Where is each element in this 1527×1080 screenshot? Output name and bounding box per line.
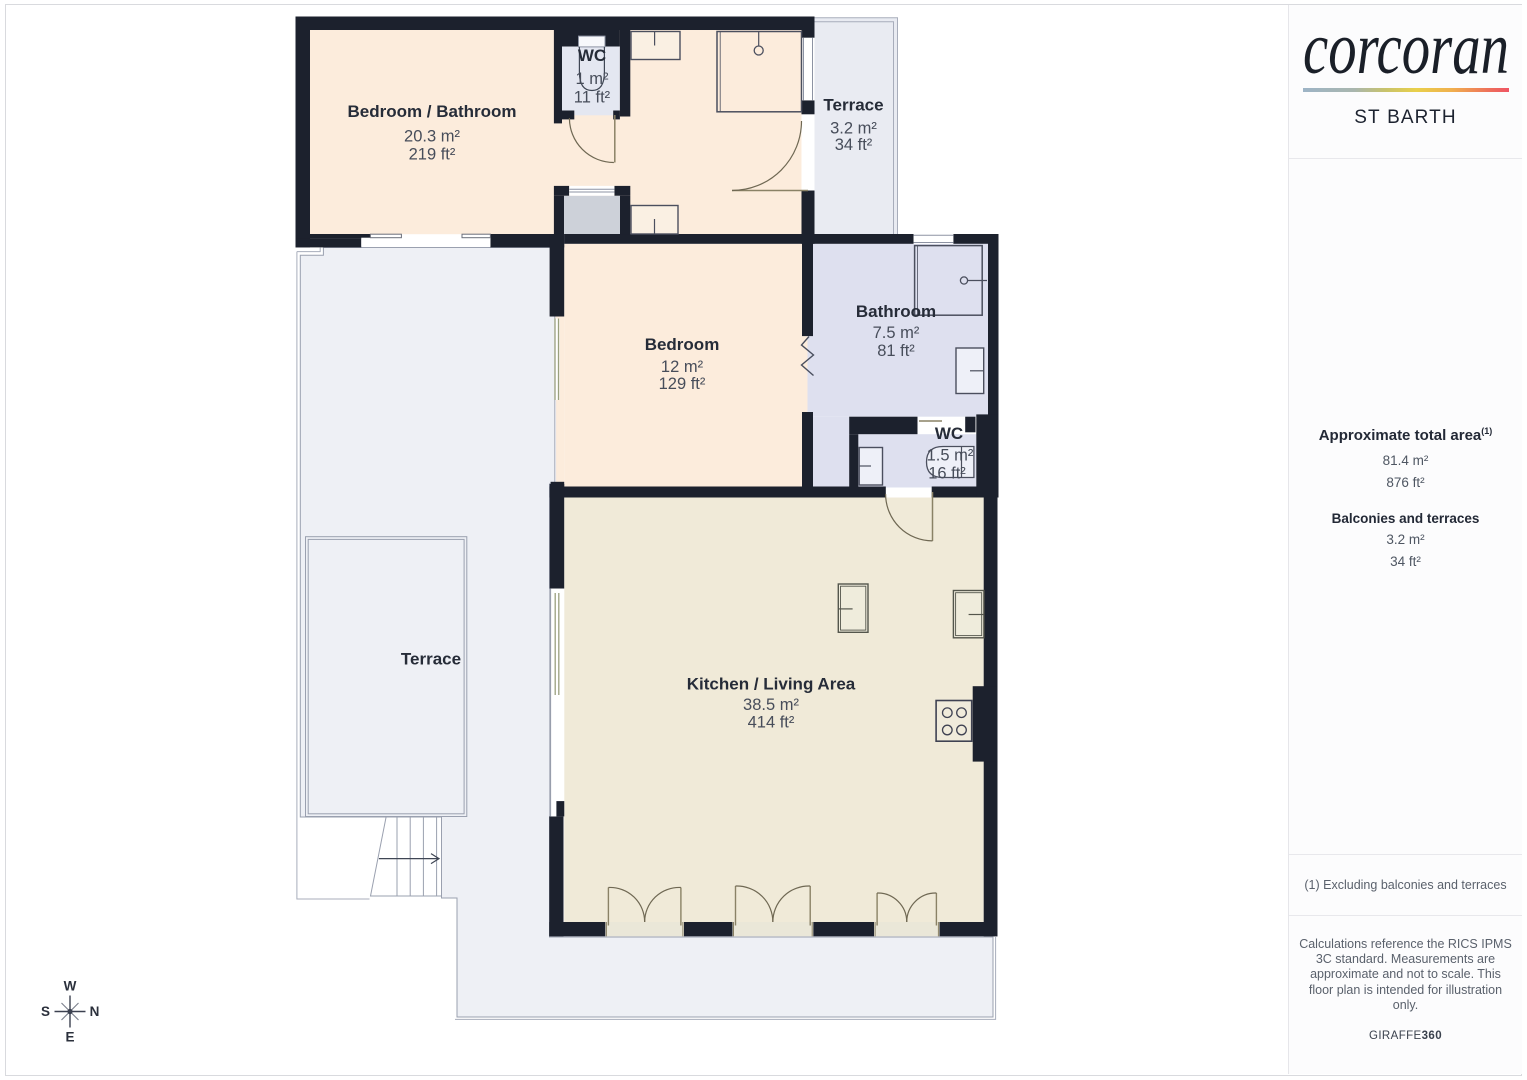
svg-text:Kitchen / Living Area: Kitchen / Living Area (687, 675, 856, 694)
svg-text:414 ft²: 414 ft² (748, 714, 795, 732)
svg-text:129 ft²: 129 ft² (659, 375, 706, 393)
svg-text:Terrace: Terrace (823, 96, 883, 115)
svg-text:Bedroom / Bathroom: Bedroom / Bathroom (347, 102, 516, 121)
svg-text:11 ft²: 11 ft² (574, 89, 611, 107)
svg-text:219 ft²: 219 ft² (409, 145, 456, 163)
svg-text:WC: WC (578, 46, 606, 65)
svg-text:W: W (64, 979, 77, 994)
svg-text:34 ft²: 34 ft² (835, 136, 873, 154)
svg-text:1.5 m²: 1.5 m² (927, 446, 974, 464)
svg-text:81 ft²: 81 ft² (877, 342, 915, 360)
svg-text:20.3 m²: 20.3 m² (404, 127, 460, 145)
svg-text:1 m²: 1 m² (576, 70, 610, 88)
svg-text:7.5 m²: 7.5 m² (873, 324, 920, 342)
svg-text:12 m²: 12 m² (661, 358, 704, 376)
svg-text:3.2 m²: 3.2 m² (830, 119, 877, 137)
svg-text:N: N (90, 1004, 100, 1019)
svg-text:WC: WC (935, 424, 963, 443)
svg-text:corcoran: corcoran (1303, 8, 1509, 90)
svg-text:Bathroom: Bathroom (856, 302, 936, 321)
svg-text:S: S (41, 1004, 50, 1019)
svg-text:E: E (65, 1030, 74, 1045)
svg-text:Bedroom: Bedroom (645, 335, 720, 354)
svg-text:38.5 m²: 38.5 m² (743, 696, 799, 714)
svg-text:Terrace: Terrace (401, 650, 461, 669)
svg-text:16 ft²: 16 ft² (928, 465, 966, 483)
